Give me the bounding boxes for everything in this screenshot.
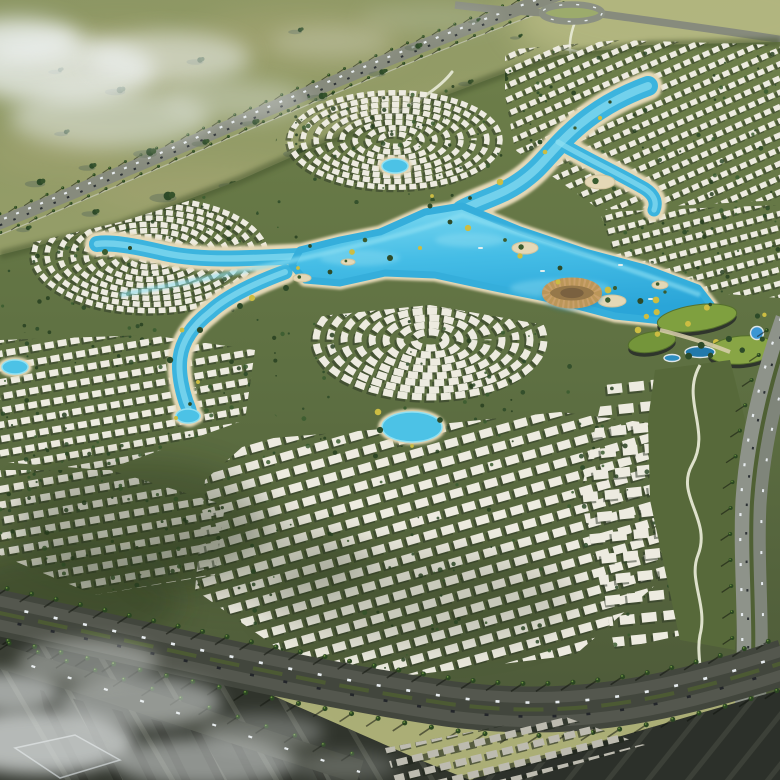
- scene-canvas: [0, 0, 780, 780]
- page: { "meta": { "type": "natural-image", "de…: [0, 0, 780, 780]
- aerial-render: [0, 0, 780, 780]
- amphitheater-island: [542, 282, 602, 311]
